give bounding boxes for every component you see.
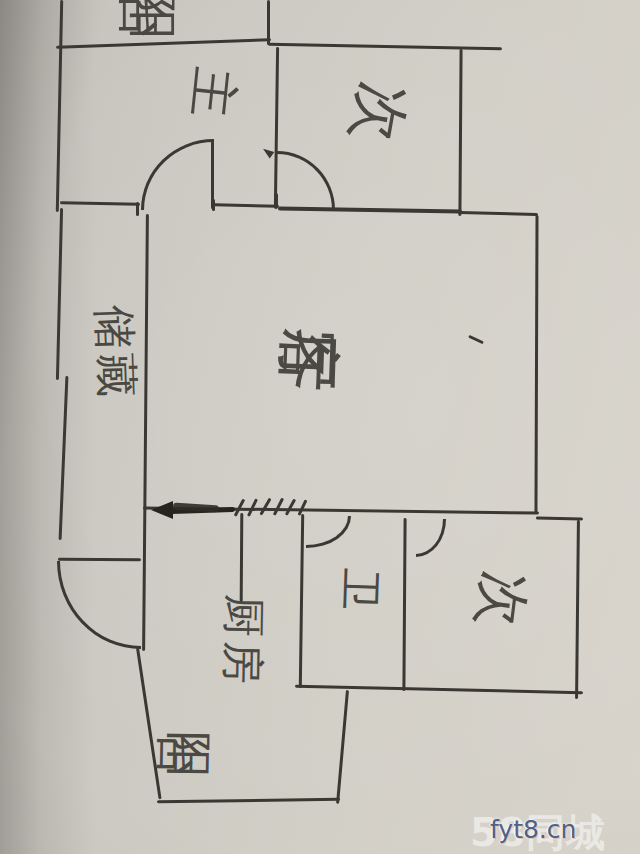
wall-outer-left-top [56, 0, 63, 212]
wall-lower-step [536, 517, 583, 521]
wall-secondary2-right [575, 520, 580, 699]
watermark-url-text: fyt8.cn [490, 815, 576, 844]
floor-plan-photo: 阳台 主 次 客厅 储藏 卫 次 厨房 阳台 58同城 fyt8.cn [0, 0, 640, 854]
wall-living-right [534, 215, 538, 514]
room-label-bathroom: 卫 [332, 564, 382, 614]
door-arc-entry [57, 561, 141, 649]
wall-balcony-right [336, 690, 349, 804]
wall-outer-left-mid-b [59, 376, 69, 540]
room-label-master: 主 [175, 59, 241, 125]
door-arc-secondary-bottom [416, 519, 446, 557]
wall-bathroom-left [299, 514, 304, 688]
room-label-kitchen: 厨房 [216, 588, 266, 694]
door-arc-arrowhead-icon [261, 146, 275, 159]
room-label-living: 客厅 [301, 314, 472, 398]
photo-vignette [0, 0, 640, 854]
wall-bathroom-right [402, 518, 406, 691]
entry-arrow-icon [150, 500, 242, 524]
room-label-storage: 储藏 [86, 300, 140, 407]
wall-balcony-left [136, 648, 162, 800]
window-hatch-icon [236, 497, 314, 521]
room-label-secondary-bottom: 次 [463, 563, 534, 634]
room-label-balcony-top: 阳台 [141, 0, 275, 41]
wall-bottom-long [295, 685, 583, 695]
room-label-balcony-bottom: 阳台 [178, 725, 303, 781]
wall-storage-divider [142, 214, 149, 651]
door-jamb-tick [136, 202, 139, 216]
wall-secondary-right [458, 49, 462, 216]
door-arc-master [141, 139, 214, 210]
wall-master-bottom-left [60, 201, 140, 206]
door-arc-secondary-top [277, 151, 335, 210]
wall-living-step [458, 211, 538, 216]
wall-balcony-bottom [157, 798, 340, 804]
room-label-secondary-top: 次 [337, 73, 416, 152]
watermark: 58同城 fyt8.cn [464, 806, 640, 854]
wall-outer-left-mid-a [56, 208, 63, 380]
wall-master-bottom-right [213, 203, 279, 207]
wall-top-right [268, 43, 502, 50]
